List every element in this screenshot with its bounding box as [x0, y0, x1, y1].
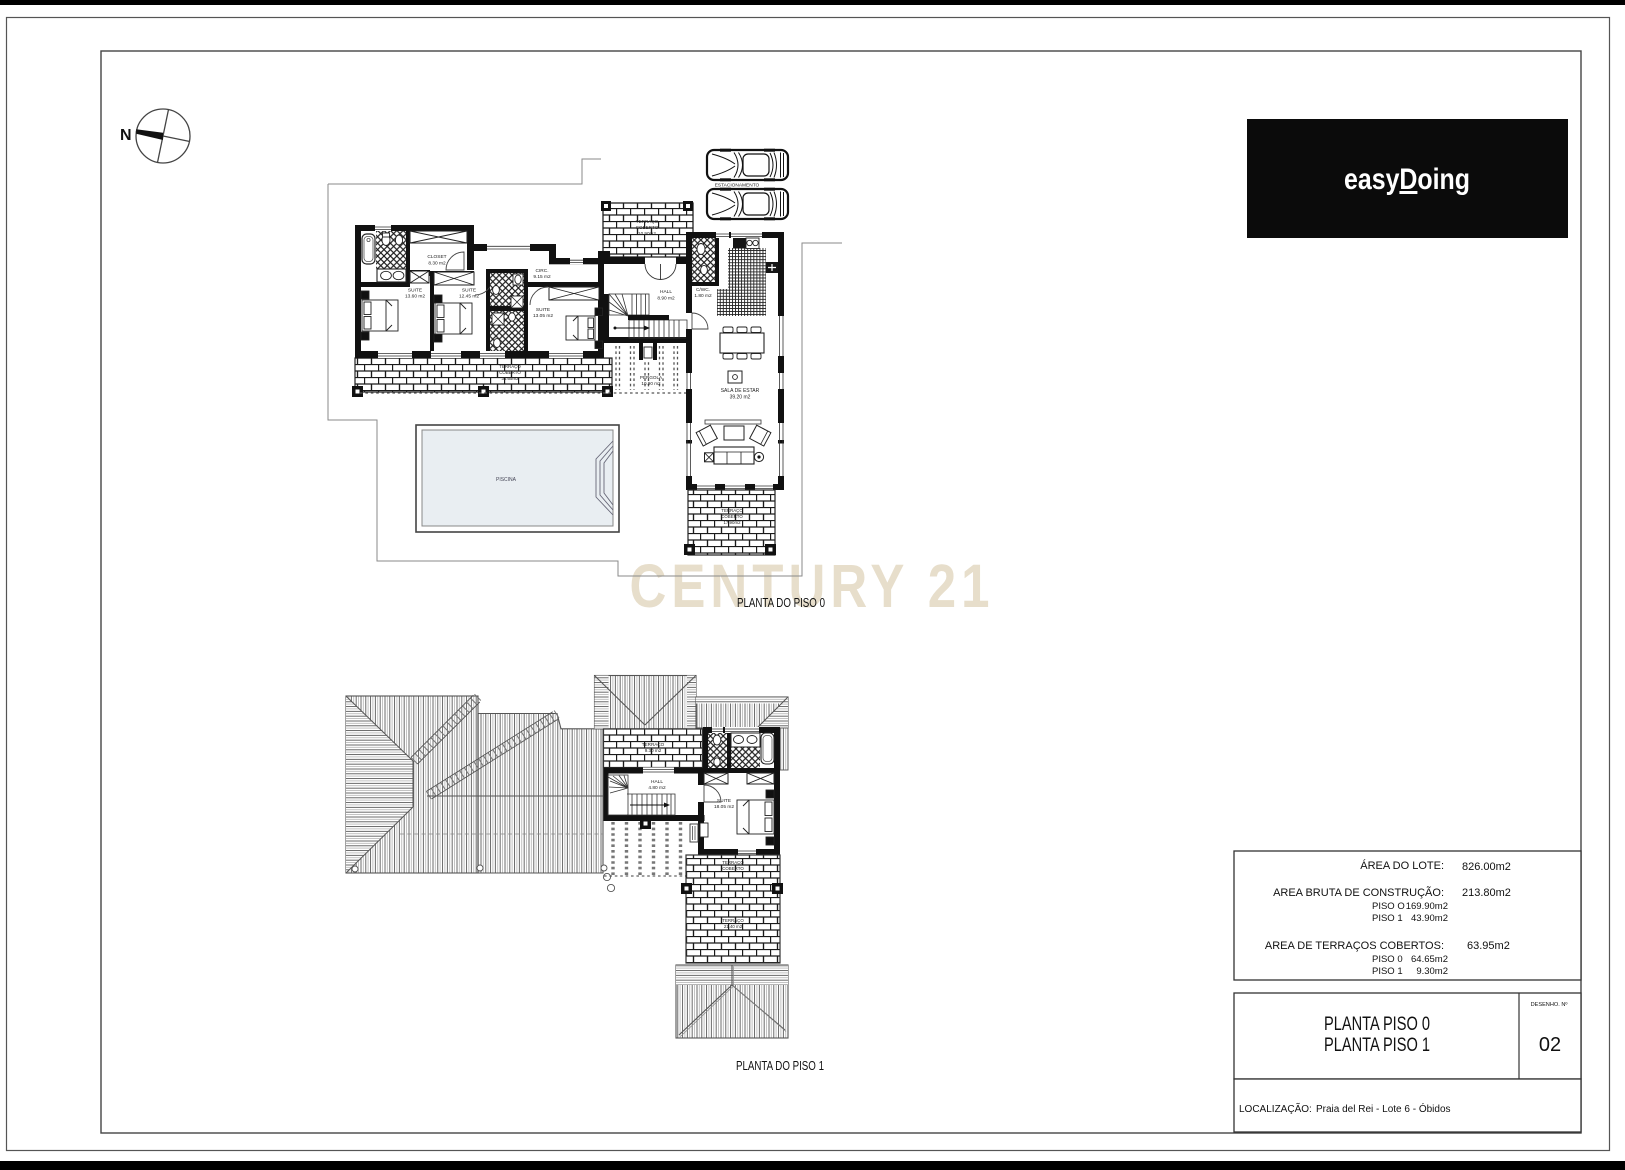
svg-text:PISO O: PISO O — [1372, 901, 1405, 912]
svg-text:4.80 m2: 4.80 m2 — [648, 785, 666, 791]
svg-text:02: 02 — [1539, 1034, 1561, 1056]
svg-text:N: N — [120, 127, 132, 144]
svg-text:DESENHO. Nº: DESENHO. Nº — [1531, 1001, 1568, 1008]
svg-text:PLANTA PISO 1: PLANTA PISO 1 — [1324, 1035, 1430, 1056]
svg-text:63.95m2: 63.95m2 — [1467, 940, 1510, 952]
svg-text:CLOSET: CLOSET — [427, 254, 446, 260]
svg-text:PISO 1: PISO 1 — [1372, 913, 1403, 924]
svg-text:8.30 m2: 8.30 m2 — [428, 261, 446, 267]
svg-text:ESTACIONAMENTO: ESTACIONAMENTO — [715, 183, 760, 189]
svg-text:SUITE: SUITE — [536, 307, 550, 313]
svg-text:Praia del Rei - Lote 6 - Óbido: Praia del Rei - Lote 6 - Óbidos — [1316, 1102, 1451, 1115]
svg-text:AREA BRUTA DE CONSTRUÇÃO:: AREA BRUTA DE CONSTRUÇÃO: — [1273, 886, 1444, 899]
svg-text:PLANTA PISO 0: PLANTA PISO 0 — [1324, 1014, 1430, 1035]
svg-text:PISO 1: PISO 1 — [1372, 966, 1403, 977]
svg-text:10.90m2: 10.90m2 — [638, 231, 656, 236]
svg-text:SUITE: SUITE — [462, 288, 476, 294]
svg-text:9.30m2: 9.30m2 — [1416, 966, 1448, 977]
svg-text:SUITE: SUITE — [408, 288, 422, 294]
svg-text:easyDoing: easyDoing — [1344, 163, 1470, 196]
svg-text:ÁREA DO LOTE:: ÁREA DO LOTE: — [1360, 859, 1444, 872]
svg-text:HALL: HALL — [651, 779, 663, 785]
svg-text:8.90 m2: 8.90 m2 — [657, 296, 675, 302]
svg-text:PISO 0: PISO 0 — [1372, 954, 1403, 965]
svg-text:SALA DE ESTAR: SALA DE ESTAR — [721, 388, 760, 394]
svg-text:CIRC.: CIRC. — [535, 268, 548, 274]
svg-text:21.40 m2: 21.40 m2 — [724, 924, 743, 929]
svg-text:43.90m2: 43.90m2 — [1411, 913, 1448, 924]
svg-text:PLANTA DO PISO 0: PLANTA DO PISO 0 — [737, 596, 825, 610]
svg-text:COBERTO: COBERTO — [721, 514, 743, 519]
svg-text:LOCALIZAÇÃO:: LOCALIZAÇÃO: — [1239, 1102, 1312, 1115]
svg-text:17.90m2: 17.90m2 — [723, 520, 741, 525]
svg-text:34.65m2: 34.65m2 — [501, 376, 519, 381]
svg-text:C/WC.: C/WC. — [696, 287, 710, 293]
svg-text:213.80m2: 213.80m2 — [1462, 887, 1511, 899]
svg-text:SUITE: SUITE — [717, 798, 731, 804]
svg-text:PERGOLA: PERGOLA — [640, 375, 663, 380]
svg-text:9.15 m2: 9.15 m2 — [533, 274, 551, 280]
svg-text:COBERTO: COBERTO — [499, 370, 521, 375]
svg-text:18.05 m2: 18.05 m2 — [714, 804, 734, 810]
svg-text:AREA DE TERRAÇOS COBERTOS:: AREA DE TERRAÇOS COBERTOS: — [1265, 940, 1444, 952]
svg-text:HALL: HALL — [660, 289, 672, 295]
svg-text:13.60 m2: 13.60 m2 — [405, 294, 425, 300]
svg-text:13.05 m2: 13.05 m2 — [533, 313, 553, 319]
svg-text:826.00m2: 826.00m2 — [1462, 861, 1511, 873]
svg-text:COBERTO: COBERTO — [636, 225, 659, 230]
svg-text:TERRAÇO: TERRAÇO — [722, 860, 744, 865]
svg-text:9.30 m2: 9.30 m2 — [645, 748, 662, 753]
svg-text:169.90m2: 169.90m2 — [1406, 901, 1448, 912]
svg-text:1.80 m2: 1.80 m2 — [694, 293, 712, 299]
svg-text:64.65m2: 64.65m2 — [1411, 954, 1448, 965]
svg-text:PLANTA DO PISO 1: PLANTA DO PISO 1 — [736, 1059, 824, 1073]
svg-text:10.90 m2: 10.90 m2 — [641, 381, 661, 386]
svg-text:TERRAÇO: TERRAÇO — [642, 742, 665, 747]
svg-text:TERRAÇO: TERRAÇO — [499, 364, 521, 369]
svg-text:PISCINA: PISCINA — [496, 477, 517, 483]
svg-text:TERRAÇO: TERRAÇO — [636, 219, 659, 224]
svg-text:COBERTO: COBERTO — [722, 866, 744, 871]
svg-text:12.45 m2: 12.45 m2 — [459, 294, 479, 300]
svg-text:TERRAÇO: TERRAÇO — [721, 508, 743, 513]
svg-text:TERRAÇO: TERRAÇO — [722, 918, 744, 923]
svg-text:39.20 m2: 39.20 m2 — [730, 395, 751, 401]
